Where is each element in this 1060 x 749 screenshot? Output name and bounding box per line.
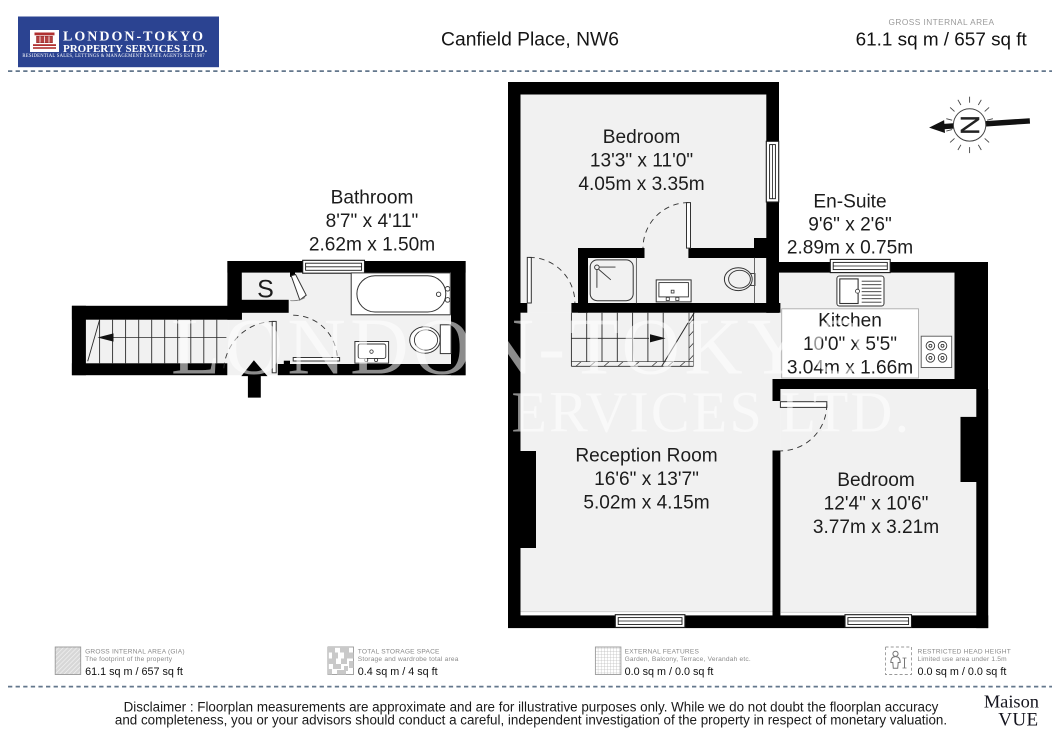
svg-text:VUE: VUE xyxy=(998,709,1038,730)
svg-text:9'6" x 2'6": 9'6" x 2'6" xyxy=(808,215,891,236)
svg-text:8'7" x 4'11": 8'7" x 4'11" xyxy=(326,211,419,232)
svg-text:The footprint of the property: The footprint of the property xyxy=(85,656,173,663)
svg-text:Bedroom: Bedroom xyxy=(837,470,914,491)
svg-text:Bathroom: Bathroom xyxy=(331,187,414,208)
svg-text:2.62m x 1.50m: 2.62m x 1.50m xyxy=(309,234,435,255)
svg-text:EXTERNAL FEATURES: EXTERNAL FEATURES xyxy=(625,648,700,655)
svg-text:61.1 sq m / 657 sq ft: 61.1 sq m / 657 sq ft xyxy=(856,30,1028,51)
svg-text:Canfield Place, NW6: Canfield Place, NW6 xyxy=(441,29,619,50)
svg-text:2.89m x 0.75m: 2.89m x 0.75m xyxy=(787,238,913,259)
svg-text:16'6" x 13'7": 16'6" x 13'7" xyxy=(594,469,699,490)
svg-text:4.05m x 3.35m: 4.05m x 3.35m xyxy=(578,174,704,195)
svg-text:TOTAL STORAGE SPACE: TOTAL STORAGE SPACE xyxy=(358,648,440,655)
svg-text:61.1 sq m / 657 sq ft: 61.1 sq m / 657 sq ft xyxy=(85,666,183,678)
svg-text:En-Suite: En-Suite xyxy=(813,192,886,213)
svg-text:SERVICES LTD.: SERVICES LTD. xyxy=(477,380,911,445)
svg-text:Storage and wardrobe total are: Storage and wardrobe total area xyxy=(358,656,459,663)
svg-text:and completeness, you or your: and completeness, you or your advisors s… xyxy=(115,713,947,728)
svg-text:RESIDENTIAL SALES, LETTINGS &: RESIDENTIAL SALES, LETTINGS & MANAGEMENT… xyxy=(22,54,205,59)
svg-text:13'3" x 11'0": 13'3" x 11'0" xyxy=(590,151,693,172)
svg-text:RESTRICTED HEAD HEIGHT: RESTRICTED HEAD HEIGHT xyxy=(918,648,1011,655)
svg-text:12'4" x 10'6": 12'4" x 10'6" xyxy=(824,494,929,515)
svg-text:LONDON-TOKYO: LONDON-TOKYO xyxy=(171,302,872,392)
svg-text:0.0 sq m / 0.0 sq ft: 0.0 sq m / 0.0 sq ft xyxy=(625,666,714,678)
svg-text:S: S xyxy=(257,276,274,304)
svg-text:0.4 sq m / 4 sq ft: 0.4 sq m / 4 sq ft xyxy=(358,666,438,678)
svg-text:Limited use area under 1.5m: Limited use area under 1.5m xyxy=(918,656,1008,663)
svg-text:3.77m x 3.21m: 3.77m x 3.21m xyxy=(813,517,939,538)
svg-text:Garden, Balcony, Terrace, Vera: Garden, Balcony, Terrace, Verandah etc. xyxy=(625,656,751,663)
svg-text:0.0 sq m / 0.0 sq ft: 0.0 sq m / 0.0 sq ft xyxy=(918,666,1007,678)
svg-text:GROSS INTERNAL AREA: GROSS INTERNAL AREA xyxy=(889,17,995,27)
svg-text:5.02m x 4.15m: 5.02m x 4.15m xyxy=(583,493,709,514)
svg-text:Reception Room: Reception Room xyxy=(575,446,717,467)
svg-text:Bedroom: Bedroom xyxy=(603,127,680,148)
svg-text:GROSS INTERNAL AREA (GIA): GROSS INTERNAL AREA (GIA) xyxy=(85,648,185,655)
